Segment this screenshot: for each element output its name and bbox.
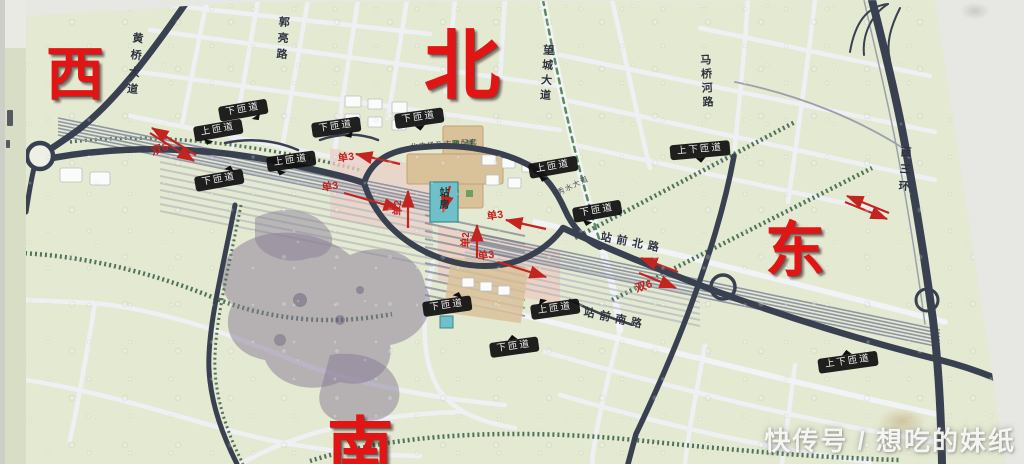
edge-mark (7, 110, 13, 126)
compass-south: 南 (327, 415, 393, 464)
map-photo: 西 北 东 南 下匝道 上匝道 下匝道 下匝道 上匝道 下匝道 上匝道 上下匝道… (0, 0, 1024, 464)
road-name-guoliang-road: 郭亮路 (274, 16, 288, 65)
watermark: 快传号 / 想吃的妹纸 (764, 421, 1016, 458)
compass-west: 西 (46, 46, 104, 104)
photo-edge-strip (0, 0, 26, 464)
road-name-xisanhuan: 西三环 (897, 146, 911, 198)
lane-label-single3-ne: 单3 (486, 210, 504, 223)
station-building-label: 站房 (437, 187, 447, 211)
lane-label-single2-right: 单2 (462, 232, 472, 248)
label-pointer (696, 157, 707, 168)
map-area (0, 0, 1024, 464)
compass-north: 北 (424, 29, 500, 105)
label-pointer (841, 344, 852, 355)
lane-label-single3-se: 单3 (477, 250, 495, 263)
label-pointer (507, 329, 518, 340)
lane-label-single3-nw: 单3 (337, 152, 355, 165)
edge-mark (6, 140, 10, 148)
label-pointer (415, 124, 426, 135)
compass-east: 东 (765, 221, 825, 281)
lane-label-single3-sw: 单3 (321, 181, 339, 194)
lane-label-single2-left: 单2 (394, 200, 404, 216)
map-canvas (0, 0, 1024, 464)
road-name-maqiaohe-road: 马桥河路 (699, 54, 713, 110)
